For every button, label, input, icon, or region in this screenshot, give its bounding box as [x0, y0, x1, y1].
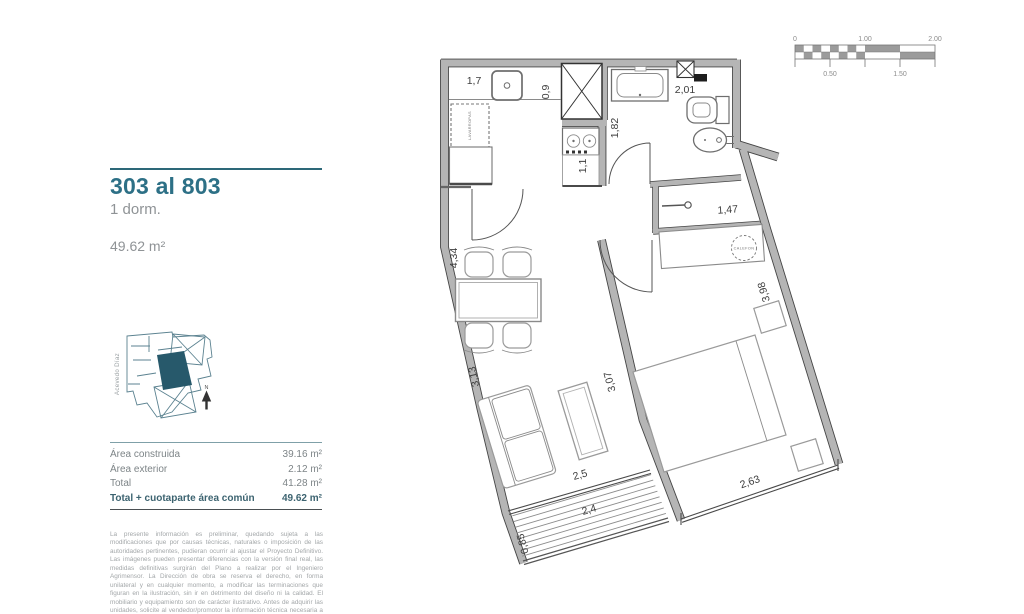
dim-closet-corridor: 1,47 [717, 203, 738, 216]
stove [563, 128, 600, 155]
entry-door-leaf [694, 74, 707, 82]
area-row-label: Total + cuotaparte área común [110, 492, 255, 507]
scale-label-05: 0.50 [823, 71, 837, 78]
brochure-page: 0 1.00 2.00 0.50 1.50 Acevedo Díaz N [0, 0, 1024, 614]
living-dining [456, 247, 652, 514]
street-label: Acevedo Díaz [114, 353, 121, 395]
dim-bedroom-width: 2,63 [738, 473, 761, 491]
bidet [694, 128, 735, 152]
dim-bedroom-depth: 3,98 [755, 280, 772, 303]
washing-machine: LAVARROPAS [451, 104, 489, 147]
bedroom: CALEFON [600, 202, 839, 525]
closet-rod [662, 202, 691, 208]
dining-table [456, 279, 542, 322]
dim-living-left: 3,13 [466, 365, 482, 388]
area-row-value: 39.16 m² [283, 448, 322, 463]
area-row-label: Área exterior [110, 463, 167, 478]
area-table: Área construida39.16 m²Área exterior2.12… [110, 448, 322, 506]
wardrobe: CALEFON [659, 225, 765, 269]
area-row-label: Área construida [110, 448, 180, 463]
north-arrow: N [202, 385, 211, 410]
key-plan: Acevedo Díaz N [114, 332, 212, 418]
duct-box [677, 61, 694, 78]
area-row-value: 41.28 m² [283, 477, 322, 492]
area-row-value: 49.62 m² [282, 492, 322, 507]
terrace [512, 475, 669, 565]
shaft [562, 64, 603, 120]
scale-bar-ticks [795, 59, 935, 67]
title-rule [110, 168, 322, 170]
bedroom-window [681, 459, 839, 525]
dim-living-right: 3,07 [602, 370, 619, 393]
wall-bath-south [650, 178, 741, 185]
nightstand-bottom [791, 439, 823, 471]
nightstand-top [754, 301, 786, 333]
table-top-rule [110, 442, 322, 443]
dim-bath-width: 2,01 [675, 84, 696, 96]
vanity-sink [612, 67, 669, 102]
dim-stove-nook: 1,1 [577, 159, 589, 174]
scale-bar: 0 1.00 2.00 0.50 1.50 [793, 36, 942, 78]
coffee-table [558, 382, 608, 460]
legal-disclaimer: La presente información es preliminar, q… [110, 531, 323, 614]
north-label: N [205, 385, 209, 391]
unit-area: 49.62 m² [110, 238, 165, 254]
fridge [450, 147, 493, 184]
bathroom-door [609, 143, 650, 184]
scale-label-15: 1.50 [893, 71, 907, 78]
toilet [687, 97, 729, 124]
dim-kitchen-return: 0,9 [540, 85, 552, 100]
table-bottom-rule [110, 509, 322, 510]
floor-plan-canvas: 0 1.00 2.00 0.50 1.50 Acevedo Díaz N [0, 0, 1024, 614]
area-row-label: Total [110, 477, 131, 492]
area-table-row: Total41.28 m² [110, 477, 322, 492]
area-table-row: Área construida39.16 m² [110, 448, 322, 463]
dim-living-height: 4,34 [448, 248, 460, 269]
kitchen-door [472, 189, 523, 240]
dim-living-front: 2,5 [571, 467, 588, 483]
scale-label-0: 0 [793, 36, 797, 43]
scale-label-1: 1.00 [858, 36, 872, 43]
area-table-row: Total + cuotaparte área común49.62 m² [110, 492, 322, 507]
dim-bath-depth: 1,82 [609, 118, 621, 139]
sofa [477, 385, 556, 489]
scale-label-2: 2.00 [928, 36, 942, 43]
apartment-plan: LAVARROPAS [441, 60, 839, 565]
area-table-row: Área exterior2.12 m² [110, 463, 322, 478]
dim-kitchen-width: 1,7 [467, 75, 482, 87]
unit-title: 303 al 803 [110, 173, 221, 200]
unit-type: 1 dorm. [110, 201, 161, 218]
heater-label: CALEFON [734, 247, 755, 251]
bathroom [609, 67, 734, 185]
washer-label: LAVARROPAS [468, 111, 472, 140]
kitchen-sink [492, 71, 522, 100]
area-row-value: 2.12 m² [288, 463, 322, 478]
key-plan-unit-highlight [157, 351, 192, 390]
